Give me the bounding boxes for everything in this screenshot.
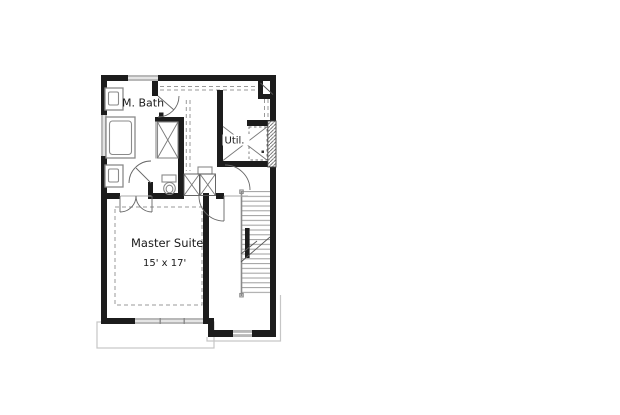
bifold-closet-right xyxy=(200,174,216,196)
shower xyxy=(155,122,178,159)
utility-bottom-wall xyxy=(217,161,268,167)
labels: M. Bath Util. Master Suite 15' x 17' xyxy=(122,97,250,270)
staircase xyxy=(240,190,271,297)
toilet xyxy=(162,175,176,195)
floor-plan-drawing: M. Bath Util. Master Suite 15' x 17' xyxy=(0,0,620,415)
utility-drain-dot xyxy=(262,151,265,154)
floor-plan-canvas: M. Bath Util. Master Suite 15' x 17' xyxy=(0,0,620,415)
stair-divider-wall xyxy=(245,228,250,258)
double-doors-master-suite xyxy=(120,196,152,212)
utility-hatched-chase xyxy=(268,121,276,167)
window-master-south xyxy=(135,318,203,324)
utility-top-wall xyxy=(247,120,270,126)
window-top xyxy=(128,75,158,81)
vanity-sink-bottom xyxy=(105,165,123,187)
master-bath-label: M. Bath xyxy=(122,97,164,110)
windows xyxy=(101,75,252,337)
hall-left-wall xyxy=(217,90,223,167)
master-suite-right-wall xyxy=(203,193,209,318)
utility-label: Util. xyxy=(225,136,245,147)
corner-chase-wall-bottom xyxy=(258,94,276,99)
vanity-sink-top xyxy=(105,88,123,110)
bifold-closet-left xyxy=(184,174,200,196)
master-suite-dimensions: 15' x 17' xyxy=(143,258,186,269)
doors xyxy=(120,96,250,221)
shower-toilet-wall xyxy=(178,117,184,199)
master-suite-label: Master Suite xyxy=(131,236,203,250)
washer-dryer-space xyxy=(249,127,267,160)
tray-ceiling-outline xyxy=(115,207,202,305)
door-hall-upper xyxy=(225,165,250,190)
window-stair-bay xyxy=(233,330,252,337)
bifold-closets xyxy=(184,167,216,196)
closet-shelf xyxy=(198,167,212,174)
bathtub xyxy=(106,117,135,158)
door-toilet-room xyxy=(129,161,151,183)
